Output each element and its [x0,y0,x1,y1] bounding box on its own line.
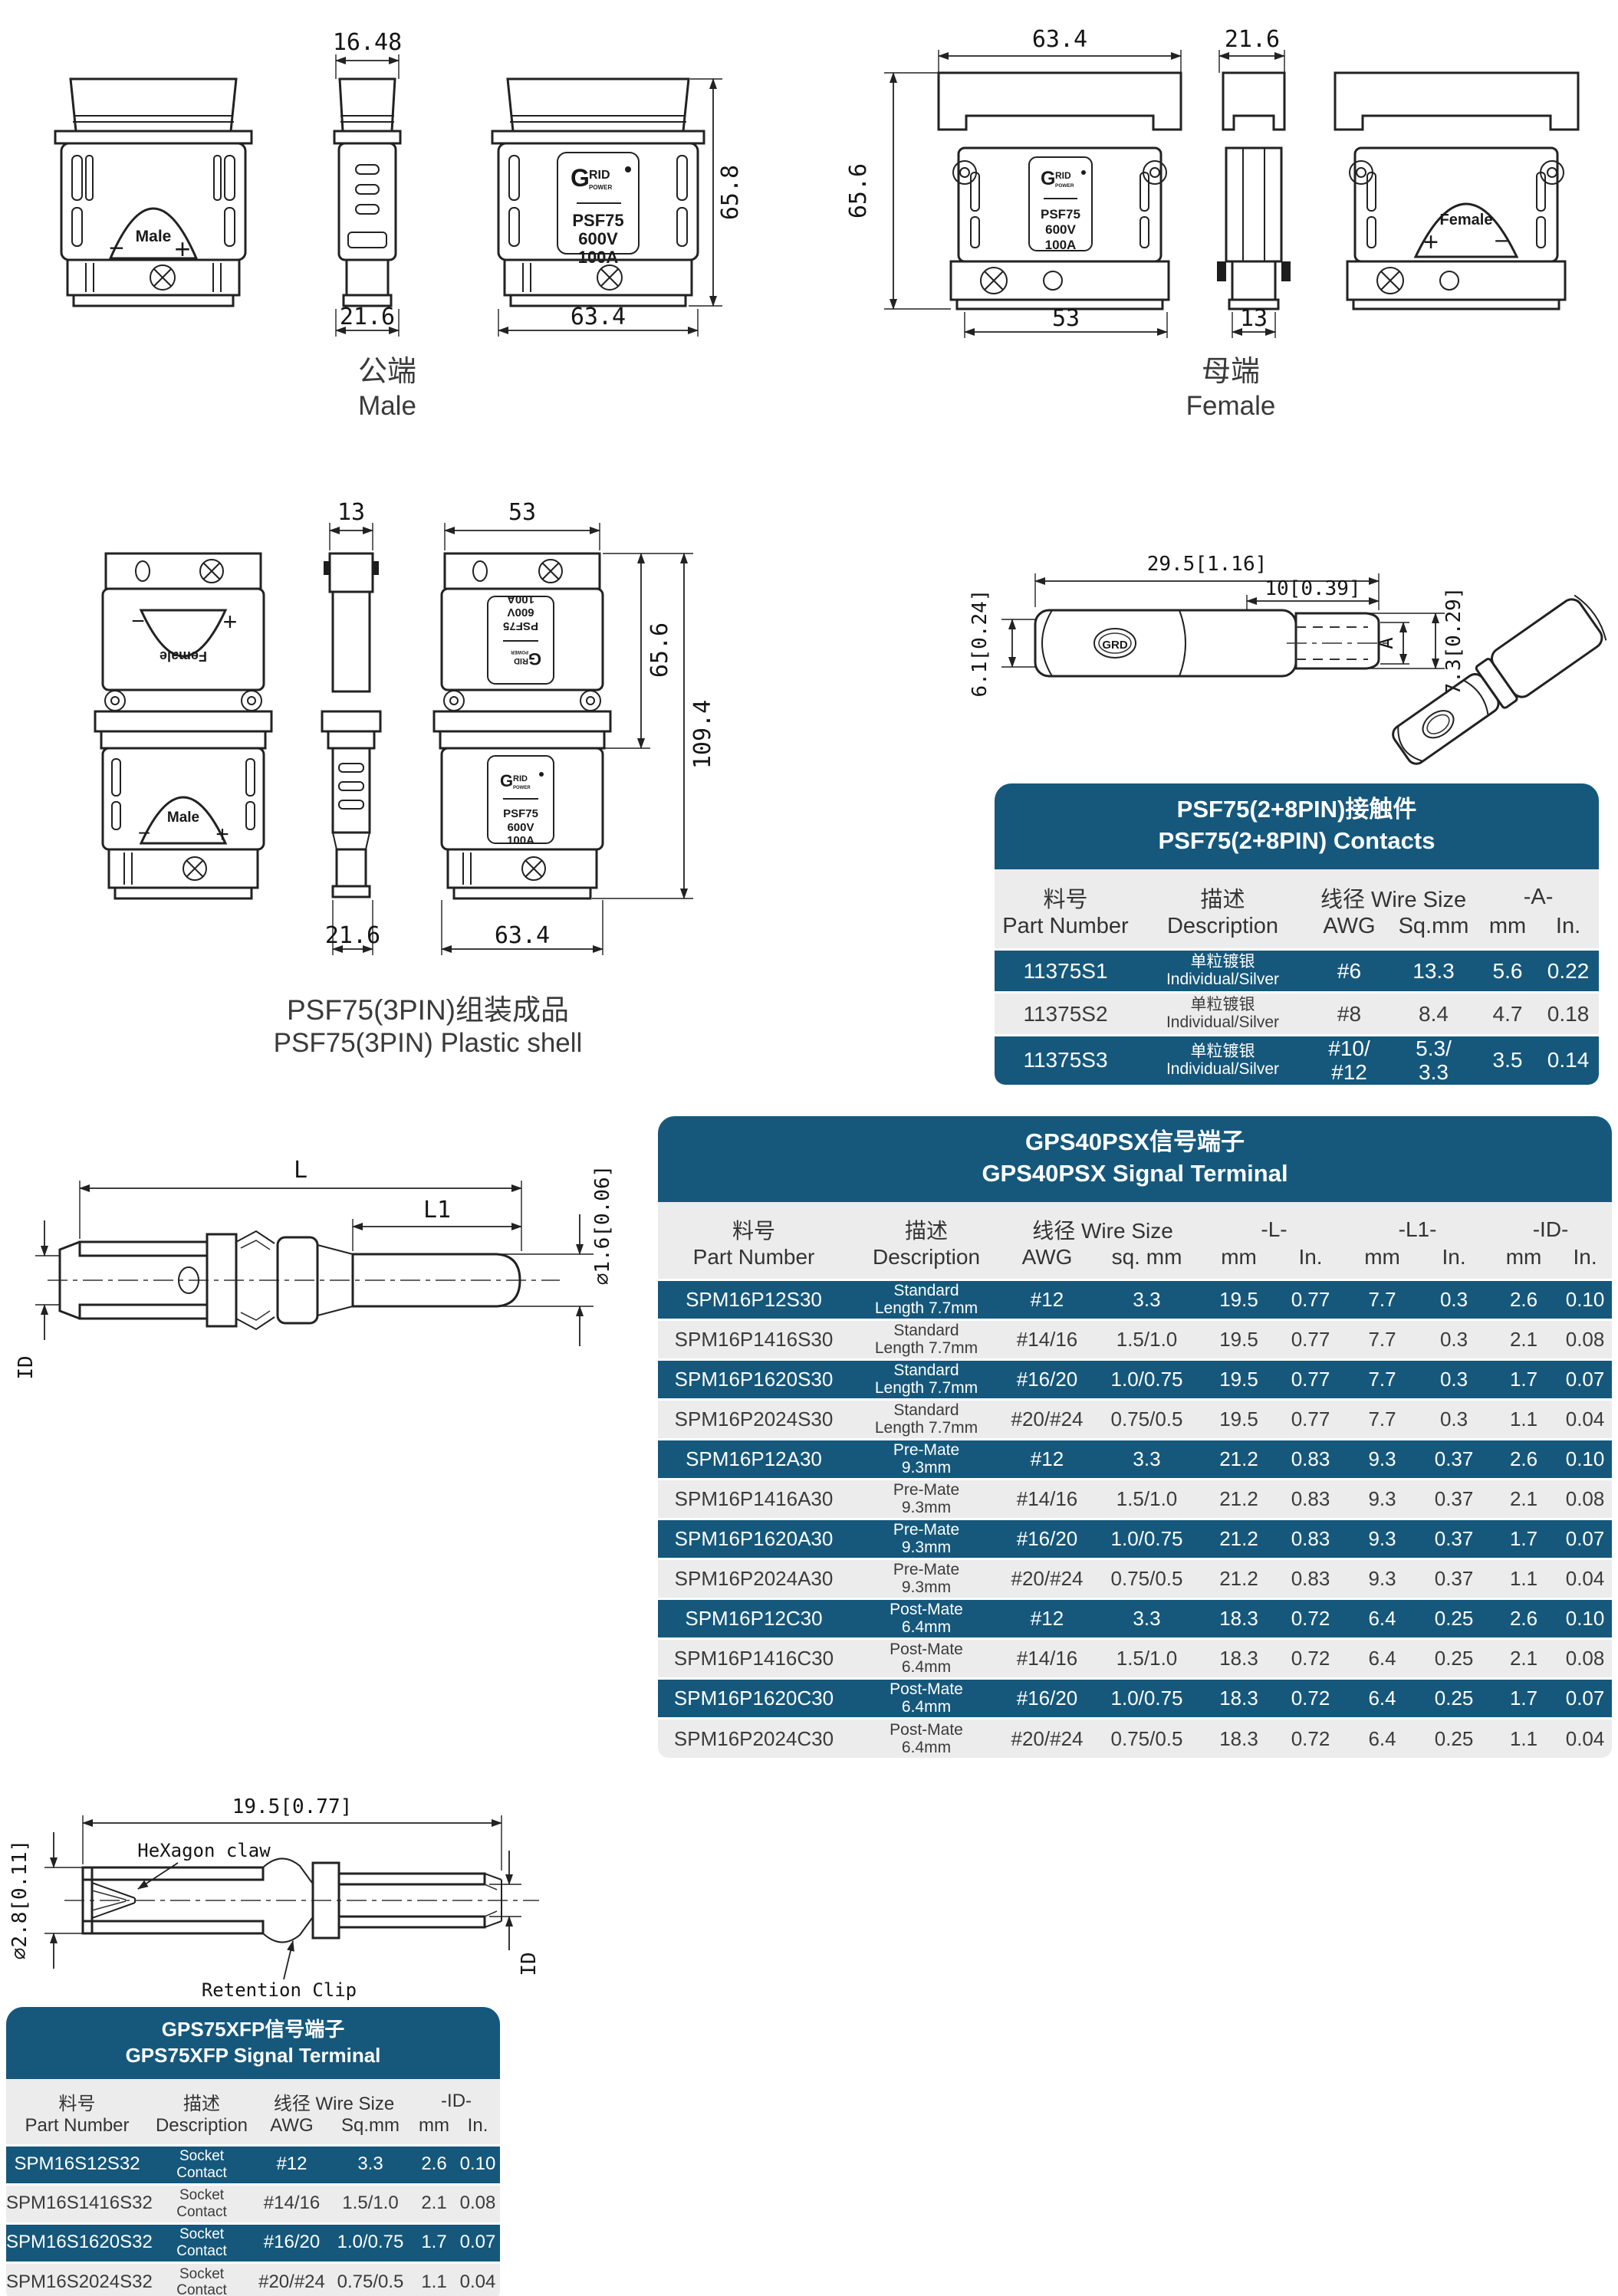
shell-back-view: G RID POWER PSF75 600V 100A G RID POWER … [434,553,610,898]
col-header: -L- [1202,1202,1346,1245]
cell-id_in: 0.10 [1558,1439,1612,1479]
cell-l_in: 0.72 [1275,1678,1346,1718]
cell-part: SPM16P2024C30 [658,1718,850,1758]
cell-part: SPM16S12S32 [6,2145,148,2184]
cell-mm: 2.6 [413,2145,455,2184]
cell-awg: #12 [1003,1598,1091,1638]
cell-l_in: 0.77 [1275,1359,1346,1399]
shell-side-view [322,553,380,897]
dim-contact-tongue: 10[0.39] [1264,577,1360,600]
female-caption-en: Female [1186,391,1276,421]
dim-socket-diameter: ∅2.8[0.11] [8,1840,31,1960]
col-header: -L1- [1346,1202,1489,1245]
table-row: SPM16P1620C30Post-Mate6.4mm#16/201.0/0.7… [658,1678,1612,1718]
col-header: mm [1489,1245,1558,1280]
cell-mm: 5.6 [1478,949,1537,992]
dim-shell-upper-height: 65.6 [646,622,673,678]
col-header: In. [1537,914,1599,950]
col-header: 描述 [148,2079,255,2115]
male-side-view [334,79,400,306]
table-row: SPM16S2024S32SocketContact#20/#240.75/0.… [6,2262,500,2296]
cell-l1_in: 0.25 [1419,1678,1489,1718]
shell-assembly-drawing: 13 53 − + Female Male − + [44,489,781,1060]
svg-text:PSF75: PSF75 [503,619,538,632]
table-title: PSF75(2+8PIN)接触件 PSF75(2+8PIN) Contacts [995,783,1599,869]
table-title-en: GPS75XFP Signal Terminal [6,2042,500,2068]
gps40-table: GPS40PSX信号端子 GPS40PSX Signal Terminal 料号… [658,1116,1612,1758]
cell-part: SPM16P1416A30 [658,1479,850,1519]
cell-sqmm: 8.4 [1389,992,1478,1035]
svg-text:G: G [1041,168,1055,189]
cell-desc: StandardLength 7.7mm [850,1359,1003,1399]
female-caption-cn: 母端 [1202,356,1260,388]
col-header: 料号 [6,2079,148,2115]
cell-part: SPM16P1416S30 [658,1319,850,1359]
cell-l1_in: 0.3 [1419,1279,1489,1319]
cell-id_mm: 2.1 [1489,1479,1558,1519]
table-header: 料号 描述 线径 Wire Size -A- Part Number Descr… [995,869,1599,950]
cell-desc: SocketContact [148,2262,255,2296]
table-header: 料号 描述 线径 Wire Size -ID- Part Number Desc… [6,2079,500,2146]
table-title: GPS75XFP信号端子 GPS75XFP Signal Terminal [6,2007,500,2079]
cell-desc: StandardLength 7.7mm [850,1319,1003,1359]
cell-l_in: 0.72 [1275,1638,1346,1678]
col-header: 线径 Wire Size [1309,869,1478,914]
dim-male-top: 16.48 [333,29,402,56]
cell-part: SPM16P12A30 [658,1439,850,1479]
svg-text:G: G [500,771,513,790]
cell-part: SPM16S1620S32 [6,2223,148,2262]
minus-marking: − [109,234,124,263]
dim-female-side: 21.6 [1225,26,1280,53]
cell-l1_in: 0.25 [1419,1718,1489,1758]
col-header: Sq.mm [1389,914,1478,950]
table-row: SPM16P1416S30StandardLength 7.7mm#14/161… [658,1319,1612,1359]
dim-contact-dia: 6.1[0.24] [968,590,992,698]
table-header: 料号 描述 线径 Wire Size -L- -L1- -ID- Part Nu… [658,1202,1612,1280]
dim-male-side: 21.6 [340,304,395,330]
svg-text:RID: RID [1055,170,1071,181]
minus-marking: − [1495,227,1509,255]
cell-desc: Pre-Mate9.3mm [850,1479,1003,1519]
col-header: AWG [1309,914,1389,950]
table-row: SPM16P1416A30Pre-Mate9.3mm#14/161.5/1.02… [658,1479,1612,1519]
table-title-cn: GPS40PSX信号端子 [658,1127,1612,1158]
col-header: 描述 [850,1202,1003,1245]
hexagon-claw-label: HeXagon claw [137,1840,271,1861]
cell-l_mm: 19.5 [1202,1359,1275,1399]
dim-socket-id: ID [518,1952,541,1976]
cell-sqmm: 3.3 [328,2145,413,2184]
svg-text:G: G [528,649,541,668]
cell-l_mm: 21.2 [1202,1439,1275,1479]
svg-text:RID: RID [589,169,610,182]
cell-l1_in: 0.25 [1419,1638,1489,1678]
cell-id_mm: 1.1 [1489,1559,1558,1598]
cell-inch: 0.10 [455,2145,500,2184]
col-header: -A- [1478,869,1599,914]
cell-l_mm: 19.5 [1202,1279,1275,1319]
cell-awg: #14/16 [1003,1638,1091,1678]
svg-text:POWER: POWER [511,649,528,654]
cell-awg: #14/16 [1003,1319,1091,1359]
cell-desc: Post-Mate6.4mm [850,1638,1003,1678]
cell-mm: 3.5 [1478,1035,1537,1084]
cell-awg: #16/20 [255,2223,328,2262]
cell-awg: #16/20 [1003,1678,1091,1718]
male-caption-en: Male [358,391,416,421]
female-side-view [1217,73,1291,309]
cell-l1_in: 0.37 [1419,1519,1489,1559]
male-caption-cn: 公端 [358,356,416,388]
plus-marking: + [1423,228,1439,257]
pin-terminal-drawing: L L1 ∅1.6[0.06] ID [14,1141,652,1459]
svg-text:600V: 600V [507,821,534,834]
col-header: In. [1419,1245,1489,1280]
dim-contact-height: 7.3[0.29] [1442,587,1465,695]
cell-part: SPM16S1416S32 [6,2184,148,2223]
cell-id_mm: 2.6 [1489,1279,1558,1319]
contacts-data-table: 料号 描述 线径 Wire Size -A- Part Number Descr… [995,869,1599,1085]
col-header: -ID- [1489,1202,1612,1245]
cell-sqmm: 13.3 [1389,949,1478,992]
dim-female-height: 65.6 [845,163,872,218]
cell-l_mm: 18.3 [1202,1718,1275,1758]
cell-l1_mm: 7.7 [1346,1359,1419,1399]
male-marking: Male [167,810,199,826]
gps40-data-table: 料号 描述 线径 Wire Size -L- -L1- -ID- Part Nu… [658,1202,1612,1759]
socket-terminal-drawing: 19.5[0.77] HeXagon claw Retention Clip ∅… [6,1792,552,2007]
col-header: mm [1478,914,1537,950]
cell-awg: #14/16 [255,2184,328,2223]
col-header: Description [148,2115,255,2146]
cell-desc: StandardLength 7.7mm [850,1279,1003,1319]
svg-text:POWER: POWER [513,786,531,790]
cell-id_in: 0.07 [1558,1678,1612,1718]
retention-clip-label: Retention Clip [202,1979,357,2001]
table-row: SPM16S12S32SocketContact#123.32.60.10 [6,2145,500,2184]
gps75-table: GPS75XFP信号端子 GPS75XFP Signal Terminal 料号… [6,2007,500,2296]
cell-part: SPM16P2024S30 [658,1399,850,1439]
cell-l1_mm: 6.4 [1346,1638,1419,1678]
cell-l1_in: 0.37 [1419,1479,1489,1519]
cell-sqmm: 0.75/0.5 [1091,1559,1202,1598]
model-label: PSF75 [572,211,623,230]
current-label: 100A [1045,238,1077,252]
col-header: In. [1275,1245,1346,1280]
svg-text:RID: RID [514,656,528,665]
cell-desc: StandardLength 7.7mm [850,1399,1003,1439]
table-title-en: GPS40PSX Signal Terminal [658,1158,1612,1190]
cell-l_mm: 21.2 [1202,1559,1275,1598]
cell-sqmm: 0.75/0.5 [1091,1399,1202,1439]
table-row: SPM16P1620A30Pre-Mate9.3mm#16/201.0/0.75… [658,1519,1612,1559]
cell-id_mm: 2.6 [1489,1439,1558,1479]
col-header: 料号 [658,1202,850,1245]
cell-l1_mm: 7.7 [1346,1279,1419,1319]
cell-awg: #12 [1003,1279,1091,1319]
cell-l_mm: 18.3 [1202,1638,1275,1678]
cell-sqmm: 5.3/ 3.3 [1389,1035,1478,1084]
voltage-label: 600V [578,229,618,248]
model-label: PSF75 [1041,207,1080,222]
table-row: SPM16P12S30StandardLength 7.7mm#123.319.… [658,1279,1612,1319]
cell-l_mm: 19.5 [1202,1399,1275,1439]
dim-contact-length: 29.5[1.16] [1147,553,1268,576]
cell-awg: #20/#24 [1003,1399,1091,1439]
col-header: 描述 [1136,869,1309,914]
contact-2d-view: GRD [1035,610,1388,676]
cell-sqmm: 1.0/0.75 [1091,1359,1202,1399]
cell-inch: 0.22 [1537,949,1599,992]
cell-part: SPM16P12S30 [658,1279,850,1319]
cell-l_mm: 21.2 [1202,1519,1275,1559]
cell-sqmm: 1.0/0.75 [1091,1519,1202,1559]
dim-female-front-bottom: 53 [1052,305,1080,332]
table-row: SPM16P12A30Pre-Mate9.3mm#123.321.20.839.… [658,1439,1612,1479]
cell-l1_mm: 6.4 [1346,1598,1419,1638]
cell-sqmm: 1.0/0.75 [328,2223,413,2262]
shell-caption-en: PSF75(3PIN) Plastic shell [274,1028,583,1058]
cell-l_mm: 18.3 [1202,1598,1275,1638]
cell-mm: 1.1 [413,2262,455,2296]
cell-l1_in: 0.3 [1419,1359,1489,1399]
cell-id_mm: 1.1 [1489,1718,1558,1758]
cell-sqmm: 0.75/0.5 [328,2262,413,2296]
cell-desc: Post-Mate6.4mm [850,1598,1003,1638]
cell-mm: 2.1 [413,2184,455,2223]
cell-awg: #12 [255,2145,328,2184]
dim-shell-front-top: 53 [508,499,536,526]
cell-l1_mm: 7.7 [1346,1399,1419,1439]
cell-awg: #12 [1003,1439,1091,1479]
cell-inch: 0.07 [455,2223,500,2262]
col-header: mm [1346,1245,1419,1280]
male-marking: Male [136,228,172,245]
cell-sqmm: 3.3 [1091,1279,1202,1319]
contacts-table: PSF75(2+8PIN)接触件 PSF75(2+8PIN) Contacts … [995,783,1599,1085]
table-row: SPM16P2024A30Pre-Mate9.3mm#20/#240.75/0.… [658,1559,1612,1598]
col-header: mm [1202,1245,1275,1280]
cell-id_in: 0.07 [1558,1359,1612,1399]
col-header: AWG [1003,1245,1091,1280]
cell-id_mm: 2.1 [1489,1319,1558,1359]
cell-desc: 单粒镀银Individual/Silver [1136,949,1309,992]
cell-l1_in: 0.3 [1419,1399,1489,1439]
cell-l1_mm: 7.7 [1346,1319,1419,1359]
dim-male-front: 63.4 [571,304,626,330]
table-row: SPM16P2024C30Post-Mate6.4mm#20/#240.75/0… [658,1718,1612,1758]
cell-inch: 0.08 [455,2184,500,2223]
cell-l_in: 0.83 [1275,1519,1346,1559]
female-marking: Female [1440,212,1493,228]
dim-pin-L1: L1 [423,1197,451,1224]
cell-id_mm: 1.7 [1489,1359,1558,1399]
cell-id_in: 0.08 [1558,1479,1612,1519]
dim-female-front: 63.4 [1032,26,1087,53]
dim-male-height: 65.8 [717,165,744,220]
minus-marking: − [138,821,150,845]
cell-desc: Post-Mate6.4mm [850,1678,1003,1718]
cell-id_mm: 1.1 [1489,1399,1558,1439]
cell-l_in: 0.77 [1275,1399,1346,1439]
table-row: 11375S3单粒镀银Individual/Silver#10/ #125.3/… [995,1035,1599,1084]
cell-part: 11375S2 [995,992,1136,1035]
svg-text:100A: 100A [507,834,534,847]
dim-pin-id: ID [15,1355,38,1379]
plus-marking: + [215,822,229,847]
cell-desc: SocketContact [148,2145,255,2184]
cell-l1_mm: 9.3 [1346,1559,1419,1598]
cell-desc: Post-Mate6.4mm [850,1718,1003,1758]
dim-shell-side-top: 13 [337,499,365,526]
svg-text:PSF75: PSF75 [503,807,538,820]
cell-l_in: 0.83 [1275,1479,1346,1519]
svg-text:RID: RID [513,774,528,783]
cell-desc: Pre-Mate9.3mm [850,1519,1003,1559]
cell-l1_mm: 9.3 [1346,1439,1419,1479]
cell-inch: 0.14 [1537,1035,1599,1084]
cell-part: SPM16S2024S32 [6,2262,148,2296]
male-connector-drawing: 16.48 Male − + [31,19,751,425]
cell-awg: #6 [1309,949,1389,992]
cell-l1_mm: 6.4 [1346,1718,1419,1758]
cell-id_in: 0.10 [1558,1598,1612,1638]
table-row: SPM16P12C30Post-Mate6.4mm#123.318.30.726… [658,1598,1612,1638]
col-header: Part Number [658,1245,850,1280]
col-header: AWG [255,2115,328,2146]
cell-l_mm: 19.5 [1202,1319,1275,1359]
table-row: SPM16P2024S30StandardLength 7.7mm#20/#24… [658,1399,1612,1439]
col-header: In. [1558,1245,1612,1280]
svg-text:POWER: POWER [589,184,612,191]
power-contact-drawing: GRD 29.5[1.16] 10[0.39] A 7.3[0.29] 6.1[… [949,527,1618,780]
cell-l1_mm: 6.4 [1346,1678,1419,1718]
cell-id_in: 0.08 [1558,1638,1612,1678]
cell-part: SPM16P1620C30 [658,1678,850,1718]
table-row: 11375S1单粒镀银Individual/Silver#613.35.60.2… [995,949,1599,992]
datasheet-page: 16.48 Male − + [0,0,1618,2296]
cell-l1_in: 0.37 [1419,1439,1489,1479]
cell-sqmm: 1.5/1.0 [328,2184,413,2223]
cell-l_in: 0.83 [1275,1559,1346,1598]
cell-l1_in: 0.25 [1419,1598,1489,1638]
dim-female-side-bottom: 13 [1240,305,1268,332]
cell-desc: Pre-Mate9.3mm [850,1559,1003,1598]
cell-awg: #14/16 [1003,1479,1091,1519]
cell-awg: #16/20 [1003,1359,1091,1399]
cell-desc: SocketContact [148,2223,255,2262]
cell-awg: #20/#24 [1003,1559,1091,1598]
cell-desc: 单粒镀银Individual/Silver [1136,1035,1309,1084]
cell-part: SPM16P1620S30 [658,1359,850,1399]
cell-l_in: 0.77 [1275,1319,1346,1359]
cell-part: SPM16P1620A30 [658,1519,850,1559]
table-title-en: PSF75(2+8PIN) Contacts [995,826,1599,857]
col-header: 线径 Wire Size [255,2079,413,2115]
cell-id_mm: 2.6 [1489,1598,1558,1638]
col-header: sq. mm [1091,1245,1202,1280]
dim-socket-length: 19.5[0.77] [232,1795,353,1818]
col-header: mm [413,2115,455,2146]
svg-text:POWER: POWER [1055,183,1074,189]
col-header: Sq.mm [328,2115,413,2146]
cell-l1_in: 0.37 [1419,1559,1489,1598]
table-title-cn: PSF75(2+8PIN)接触件 [995,794,1599,826]
cell-awg: #16/20 [1003,1519,1091,1559]
cell-sqmm: 3.3 [1091,1598,1202,1638]
cell-l_in: 0.72 [1275,1598,1346,1638]
female-back-view: Female + − [1335,73,1578,309]
contact-3d-view [1386,592,1610,772]
cell-sqmm: 1.5/1.0 [1091,1319,1202,1359]
cell-awg: #10/ #12 [1309,1035,1389,1084]
cell-sqmm: 3.3 [1091,1439,1202,1479]
cell-sqmm: 1.5/1.0 [1091,1638,1202,1678]
female-marking: Female [159,649,207,664]
cell-mm: 1.7 [413,2223,455,2262]
col-header: 料号 [995,869,1136,914]
svg-text:G: G [571,164,590,192]
shell-front-view: − + Female Male − + [95,553,271,898]
cell-part: SPM16P12C30 [658,1598,850,1638]
cell-inch: 0.04 [455,2262,500,2296]
table-row: SPM16S1416S32SocketContact#14/161.5/1.02… [6,2184,500,2223]
cell-awg: #20/#24 [1003,1718,1091,1758]
dim-shell-side-bottom: 21.6 [325,922,380,949]
contact-logo: GRD [1102,639,1128,652]
cell-awg: #8 [1309,992,1389,1035]
cell-l_in: 0.83 [1275,1439,1346,1479]
male-back-view: G RID POWER PSF75 600V 100A [492,79,704,306]
cell-l_mm: 18.3 [1202,1678,1275,1718]
cell-id_mm: 1.7 [1489,1519,1558,1559]
cell-desc: SocketContact [148,2184,255,2223]
col-header: Part Number [6,2115,148,2146]
col-header: -ID- [413,2079,500,2115]
col-header: Part Number [995,914,1136,950]
cell-l1_mm: 9.3 [1346,1519,1419,1559]
svg-text:100A: 100A [507,593,534,606]
cell-part: SPM16P1416C30 [658,1638,850,1678]
cell-mm: 4.7 [1478,992,1537,1035]
col-header: Description [1136,914,1309,950]
voltage-label: 600V [1045,222,1076,237]
col-header: In. [455,2115,500,2146]
cell-part: SPM16P2024A30 [658,1559,850,1598]
cell-id_in: 0.04 [1558,1559,1612,1598]
cell-l_in: 0.77 [1275,1279,1346,1319]
cell-id_mm: 1.7 [1489,1678,1558,1718]
cell-sqmm: 1.5/1.0 [1091,1479,1202,1519]
table-title-cn: GPS75XFP信号端子 [6,2016,500,2042]
dim-contact-a: A [1375,637,1398,649]
cell-desc: Pre-Mate9.3mm [850,1439,1003,1479]
dim-shell-total-height: 109.4 [689,700,716,769]
cell-id_in: 0.04 [1558,1718,1612,1758]
table-row: 11375S2单粒镀银Individual/Silver#88.44.70.18 [995,992,1599,1035]
cell-id_in: 0.04 [1558,1399,1612,1439]
female-front-view: G RID POWER PSF75 600V 100A [939,73,1181,309]
table-row: SPM16S1620S32SocketContact#16/201.0/0.75… [6,2223,500,2262]
cell-id_in: 0.07 [1558,1519,1612,1559]
cell-part: 11375S3 [995,1035,1136,1084]
cell-id_mm: 2.1 [1489,1638,1558,1678]
dim-pin-diameter: ∅1.6[0.06] [591,1165,614,1286]
dim-pin-L: L [294,1157,307,1184]
cell-l1_in: 0.3 [1419,1319,1489,1359]
cell-l_mm: 21.2 [1202,1479,1275,1519]
